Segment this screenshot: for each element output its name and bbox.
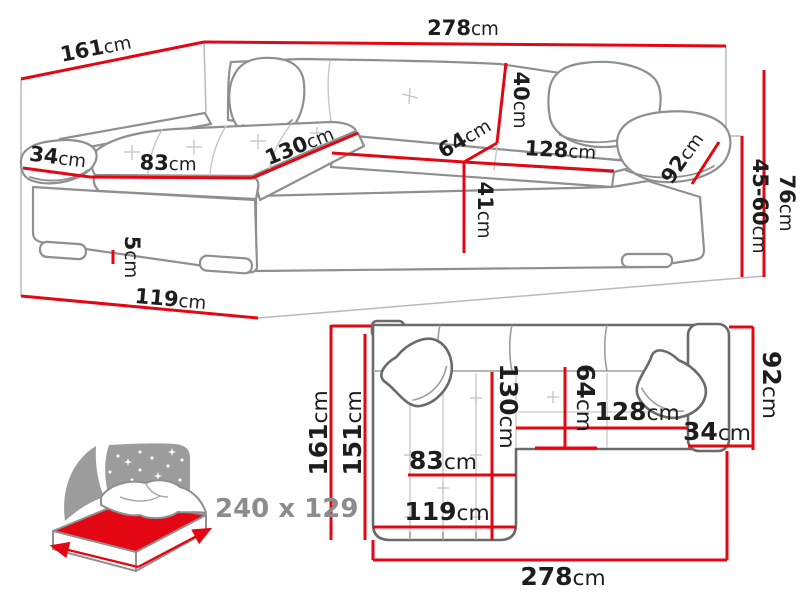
dim-label-armrest-depth-top: 92cm	[757, 351, 786, 419]
dim-label-depth-outer-top: 161cm	[304, 390, 333, 475]
dim-label-chaise-seat-width-3d: 83cm	[139, 151, 196, 176]
top-view: 161cm 151cm 92cm 130cm 64cm 128cm 34cm 8…	[304, 321, 786, 591]
dim-label-seat-width-top: 128cm	[594, 397, 679, 426]
dim-label-leg-height-3d: 5cm	[120, 236, 144, 278]
dim-label-seat-height-3d: 41cm	[473, 181, 497, 238]
sofa-leg-right	[622, 254, 672, 267]
dim-label-total-height-3d: 76cm	[775, 174, 799, 231]
dim-line-278-3d	[204, 42, 726, 46]
dim-line-83-3d	[90, 177, 252, 178]
dim-label-width-top: 278cm	[520, 562, 605, 591]
dim-label-depth-inner-top: 151cm	[338, 390, 367, 475]
dim-label-armrest-width-top: 34cm	[683, 417, 751, 446]
dim-label-chaise-length-top: 130cm	[494, 363, 523, 448]
dim-label-adjustable-height-3d: 45-60cm	[748, 158, 772, 253]
perspective-view: 161cm 278cm 34cm 83cm 130cm 40cm 64cm 12…	[21, 16, 799, 318]
bed-size-label: 240 x 129	[215, 494, 358, 524]
diagram-svg: 161cm 278cm 34cm 83cm 130cm 40cm 64cm 12…	[0, 0, 800, 600]
sofa-leg-front-right	[200, 255, 253, 274]
dim-label-chaise-total-length-top: 119cm	[404, 497, 489, 526]
dim-label-chaise-seat-width-top: 83cm	[409, 446, 477, 475]
dim-label-depth-3d: 161cm	[58, 30, 133, 67]
dim-label-chaise-total-length-3d: 119cm	[134, 284, 208, 314]
sofa-leg-front-left	[39, 241, 86, 259]
dim-label-backrest-height-3d: 40cm	[509, 71, 533, 128]
dim-label-width-3d: 278cm	[427, 16, 499, 40]
sofa-dimensions-diagram: 161cm 278cm 34cm 83cm 130cm 40cm 64cm 12…	[0, 0, 800, 600]
